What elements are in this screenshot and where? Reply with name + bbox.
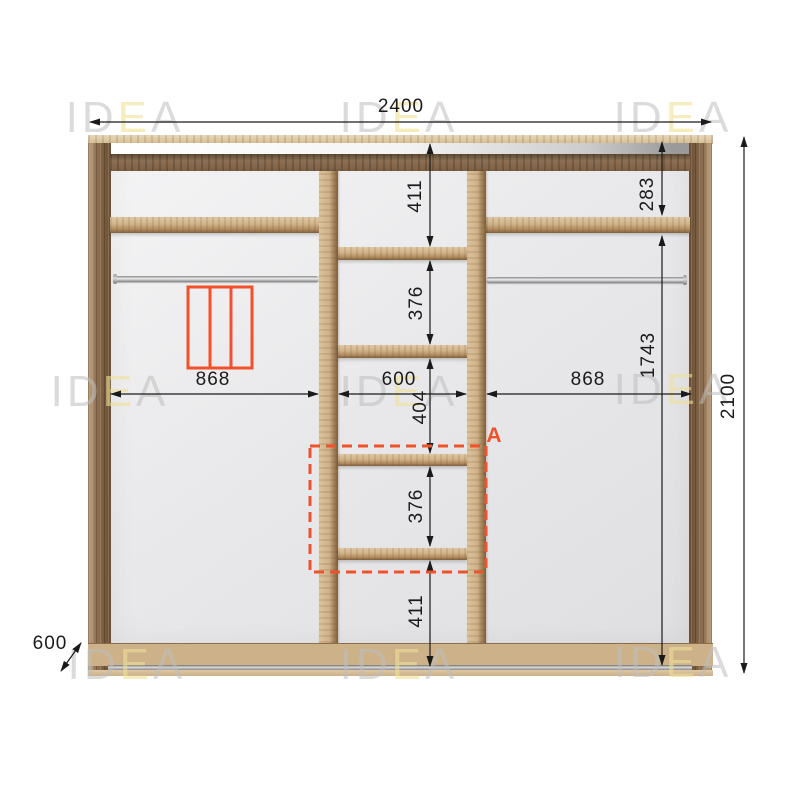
dim-label-total-width: 2400	[378, 96, 424, 118]
dim-label-right-width: 868	[571, 369, 606, 391]
dim-label-left-width: 868	[196, 369, 231, 391]
dim-label-right-lower: 1743	[638, 332, 660, 378]
dim-label-center-gap-5: 411	[406, 594, 428, 627]
dim-label-center-gap-3: 404	[410, 390, 432, 425]
section-a-label: A	[486, 424, 501, 448]
dim-label-right-top: 283	[637, 177, 659, 212]
section-a-dashed-outline	[310, 446, 486, 572]
wardrobe-dimension-diagram: IDEA IDEA IDEA IDEA IDEA IDEA IDEA IDEA …	[0, 0, 800, 800]
vertical-sections-icon	[188, 287, 252, 368]
annotation-layer	[0, 0, 800, 800]
dim-label-center-gap-1: 411	[405, 179, 427, 212]
dim-label-center-gap-4: 376	[406, 489, 428, 524]
dim-label-center-gap-2: 376	[406, 286, 428, 321]
dim-label-total-height: 2100	[718, 373, 740, 419]
dim-label-center-width: 600	[382, 369, 417, 391]
dim-label-depth: 600	[33, 633, 68, 655]
